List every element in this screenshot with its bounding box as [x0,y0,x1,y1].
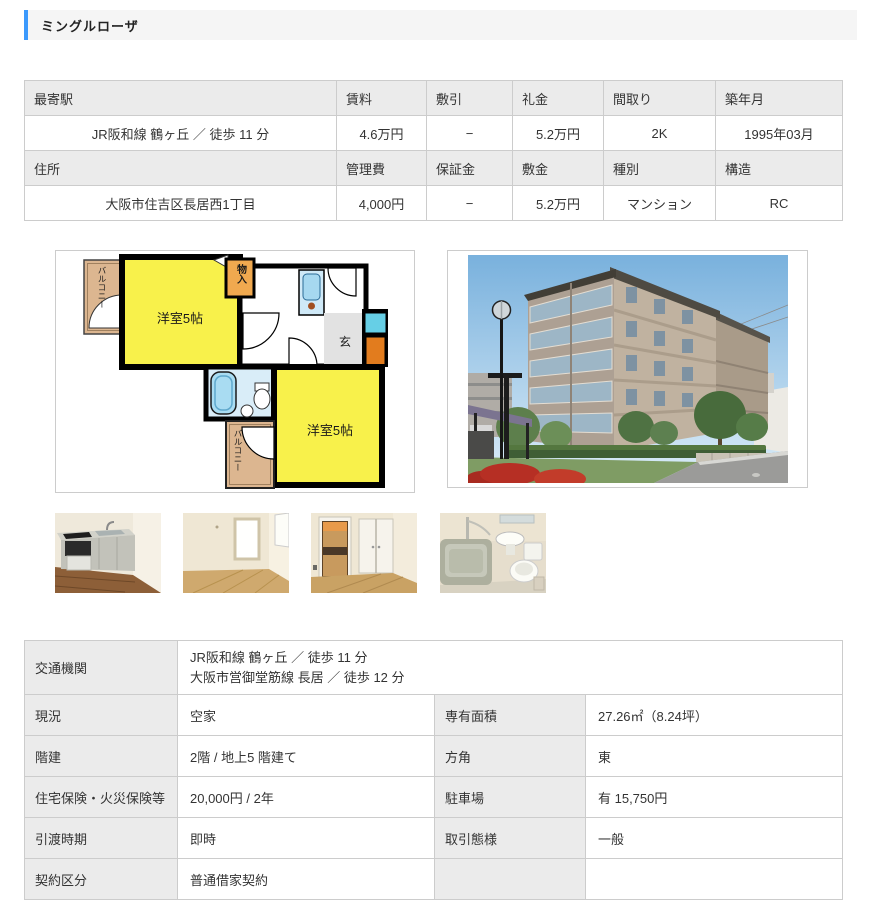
header-security-deposit: 敷金 [513,151,604,186]
label-parking: 駐車場 [435,777,586,818]
label-insurance: 住宅保険・火災保険等 [25,777,178,818]
page-title: ミングルローザ [41,16,139,35]
thumbnail-bathroom[interactable] [440,513,546,593]
header-nearest-station: 最寄駅 [25,81,337,116]
floorplan-balcony-top: バルコニー [84,260,124,334]
value-transport: JR阪和線 鶴ヶ丘 ／ 徒歩 11 分 大阪市営御堂筋線 長居 ／ 徒歩 12 … [178,641,843,695]
summary-table: 最寄駅 賃料 敷引 礼金 間取り 築年月 JR阪和線 鶴ヶ丘 ／ 徒歩 11 分… [24,80,843,221]
detail-table: 交通機関 JR阪和線 鶴ヶ丘 ／ 徒歩 11 分 大阪市営御堂筋線 長居 ／ 徒… [24,640,843,900]
label-empty [435,859,586,900]
label-direction: 方角 [435,736,586,777]
label-exclusive-area: 専有面積 [435,695,586,736]
value-security-deposit: 5.2万円 [513,186,604,221]
thumbnail-kitchen[interactable] [55,513,161,593]
header-guarantee-money: 保証金 [427,151,513,186]
detail-row-contract: 契約区分 普通借家契約 [25,859,843,900]
property-detail-page: ミングルローザ 最寄駅 賃料 敷引 礼金 間取り 築年月 JR阪和線 鶴ヶ丘 ／… [0,0,882,874]
header-property-type: 種別 [604,151,716,186]
floorplan-closet: 物入 [226,259,254,297]
value-empty [586,859,843,900]
header-structure: 構造 [716,151,843,186]
floorplan-balcony-bottom: バルコニー [226,421,274,488]
label-handover: 引渡時期 [25,818,178,859]
value-handover: 即時 [178,818,435,859]
label-floors: 階建 [25,736,178,777]
value-current-status: 空家 [178,695,435,736]
floorplan-shoebox-cyan [365,313,386,333]
value-layout: 2K [604,116,716,151]
floorplan-storage-orange [366,337,385,365]
value-floors: 2階 / 地上5 階建て [178,736,435,777]
detail-row-status-area: 現況 空家 専有面積 27.26㎡（8.24坪） [25,695,843,736]
label-transaction-type: 取引態様 [435,818,586,859]
entrance-label: 玄 [339,334,351,349]
header-rent: 賃料 [337,81,427,116]
label-transport: 交通機関 [25,641,178,695]
page-title-bar: ミングルローザ [24,10,857,40]
value-management-fee: 4,000円 [337,186,427,221]
building-photo-graphic [468,255,788,483]
value-direction: 東 [586,736,843,777]
header-deposit-deduction: 敷引 [427,81,513,116]
value-exclusive-area: 27.26㎡（8.24坪） [586,695,843,736]
thumbnail-room-window[interactable] [183,513,289,593]
value-nearest-station: JR阪和線 鶴ヶ丘 ／ 徒歩 11 分 [25,116,337,151]
detail-row-insurance-parking: 住宅保険・火災保険等 20,000円 / 2年 駐車場 有 15,750円 [25,777,843,818]
label-contract-type: 契約区分 [25,859,178,900]
floorplan-entrance: 玄 [324,313,366,364]
summary-header-row-2: 住所 管理費 保証金 敷金 種別 構造 [25,151,843,186]
value-contract-type: 普通借家契約 [178,859,435,900]
room-west-label: 洋室5帖 [157,311,203,326]
transport-line-1: JR阪和線 鶴ヶ丘 ／ 徒歩 11 分 [190,648,838,668]
header-address: 住所 [25,151,337,186]
floorplan-graphic: バルコニー 物入 玄 [56,251,414,492]
transport-line-2: 大阪市営御堂筋線 長居 ／ 徒歩 12 分 [190,668,838,688]
value-key-money: 5.2万円 [513,116,604,151]
value-guarantee-money: − [427,186,513,221]
label-current-status: 現況 [25,695,178,736]
title-accent-bar [24,10,28,40]
header-built-date: 築年月 [716,81,843,116]
value-address: 大阪市住吉区長居西1丁目 [25,186,337,221]
header-key-money: 礼金 [513,81,604,116]
balcony-bottom-label: バルコニー [233,429,243,472]
summary-value-row-1: JR阪和線 鶴ヶ丘 ／ 徒歩 11 分 4.6万円 − 5.2万円 2K 199… [25,116,843,151]
value-rent: 4.6万円 [337,116,427,151]
value-deposit-deduction: − [427,116,513,151]
floorplan-toilet [299,270,324,315]
detail-row-floor-direction: 階建 2階 / 地上5 階建て 方角 東 [25,736,843,777]
value-parking: 有 15,750円 [586,777,843,818]
floorplan-bathroom [206,367,274,419]
closet-label: 物入 [235,263,247,285]
value-property-type: マンション [604,186,716,221]
room-window-thumb-graphic [183,513,289,593]
value-built-date: 1995年03月 [716,116,843,151]
value-structure: RC [716,186,843,221]
room-closet-thumb-graphic [311,513,417,593]
room-east-label: 洋室5帖 [307,423,353,438]
detail-row-transport: 交通機関 JR阪和線 鶴ヶ丘 ／ 徒歩 11 分 大阪市営御堂筋線 長居 ／ 徒… [25,641,843,695]
kitchen-thumb-graphic [55,513,161,593]
summary-value-row-2: 大阪市住吉区長居西1丁目 4,000円 − 5.2万円 マンション RC [25,186,843,221]
building-photo[interactable] [447,250,808,488]
thumbnail-room-closet[interactable] [311,513,417,593]
balcony-top-label: バルコニー [97,266,107,309]
value-insurance: 20,000円 / 2年 [178,777,435,818]
bathroom-thumb-graphic [440,513,546,593]
floorplan-image[interactable]: バルコニー 物入 玄 [55,250,415,493]
detail-row-handover-transaction: 引渡時期 即時 取引態様 一般 [25,818,843,859]
header-management-fee: 管理費 [337,151,427,186]
summary-header-row-1: 最寄駅 賃料 敷引 礼金 間取り 築年月 [25,81,843,116]
header-layout: 間取り [604,81,716,116]
value-transaction-type: 一般 [586,818,843,859]
